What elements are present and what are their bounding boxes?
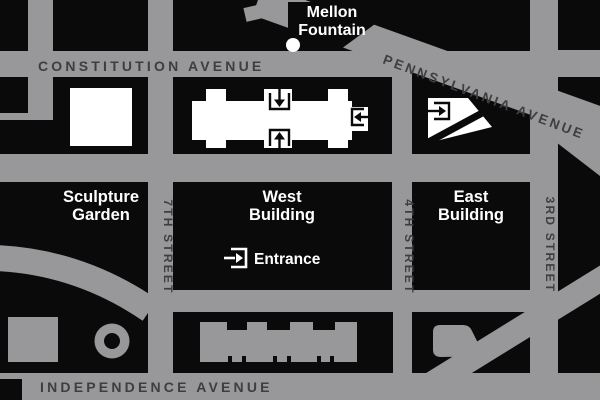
- block-top-2: [53, 0, 148, 51]
- block-west-sliver: [0, 77, 28, 113]
- mellon-fountain-label-line2: Fountain: [298, 22, 366, 39]
- long-building-tooth: [287, 356, 291, 362]
- sculpture-garden-label-line2: Garden: [72, 206, 130, 224]
- independence-avenue-label: INDEPENDENCE AVENUE: [40, 379, 273, 395]
- long-building-notch: [227, 322, 247, 330]
- long-building-notch: [313, 322, 335, 330]
- sculpture-garden-label-line1: Sculpture: [63, 188, 139, 206]
- east-building-label-line1: East: [454, 188, 489, 206]
- round-plaza-center: [104, 333, 120, 349]
- entrance-label: Entrance: [254, 251, 321, 268]
- block-west-lower: [0, 120, 53, 154]
- third-street-label: 3RD STREET: [543, 197, 557, 294]
- seventh-street-label: 7TH STREET: [161, 199, 175, 294]
- block-bottom-left-corner: [0, 379, 22, 400]
- west-building-right-pavilion: [328, 89, 348, 148]
- long-building-notch: [267, 322, 290, 330]
- fourth-street-label: 4TH STREET: [402, 199, 416, 294]
- west-building-label-line2: Building: [249, 206, 315, 224]
- east-building-label-line2: Building: [438, 206, 504, 224]
- west-building-label-line1: West: [262, 188, 302, 206]
- gallery-area-map: CONSTITUTION AVENUE PENNSYLVANIA AVENUE …: [0, 0, 600, 400]
- west-building-left-pavilion: [206, 89, 226, 148]
- square-building: [8, 317, 58, 362]
- long-building-tooth: [242, 356, 246, 362]
- long-building-tooth: [228, 356, 232, 362]
- mellon-fountain-label-line1: Mellon: [307, 4, 358, 21]
- constitution-avenue-label: CONSTITUTION AVENUE: [38, 58, 264, 74]
- long-building-tooth: [273, 356, 277, 362]
- map-canvas: CONSTITUTION AVENUE PENNSYLVANIA AVENUE …: [0, 0, 600, 400]
- long-building-tooth: [330, 356, 334, 362]
- sculpture-garden-pavilion: [70, 88, 132, 146]
- mellon-fountain-dot: [286, 38, 300, 52]
- long-building-tooth: [317, 356, 321, 362]
- block-top-right: [558, 0, 600, 50]
- block-top-left: [0, 0, 28, 51]
